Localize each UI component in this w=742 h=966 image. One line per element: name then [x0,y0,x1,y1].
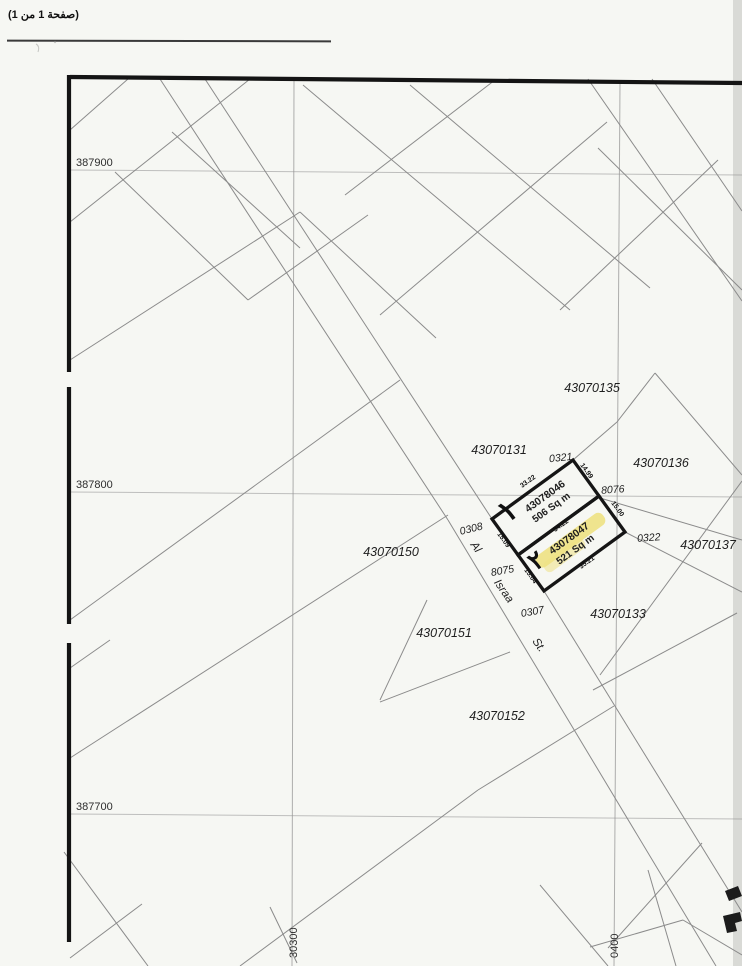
parcel-line [70,380,400,620]
grid-label-387700: 387700 [76,801,113,813]
parcel-line [648,870,676,966]
parcel-line [540,885,608,966]
pencil-mark [54,41,56,43]
grid-label-387900: 387900 [76,157,113,169]
parcel-line [598,148,742,290]
parcel-line [172,132,300,248]
parcel-line [70,904,142,958]
street-number-0307: 0307 [520,604,546,620]
parcel-line [205,79,492,519]
parcel-label-43070136: 43070136 [633,456,689,470]
parcel-line [617,373,655,422]
street-number-0322: 0322 [637,531,661,545]
parcel-label-43070133: 43070133 [590,607,646,621]
parcel-label-43070137: 43070137 [680,538,737,552]
parcel-label-43070131: 43070131 [471,443,527,457]
cadastral-map: 387900 387800 387700 30300 0400 43070135… [0,0,742,966]
parcel-line [70,79,128,130]
parcel-line [560,160,718,310]
parcel-line [380,122,607,315]
parcel-boundaries [64,79,742,966]
dimension-35-21: 35.21 [578,555,596,571]
grid-line-387900 [70,170,742,175]
street-number-0321: 0321 [548,451,572,465]
parcel-line [70,212,300,360]
parcel-line [448,520,716,966]
street-number-8076: 8076 [601,483,625,497]
street-number-8075: 8075 [490,563,515,579]
parcel-line [115,172,248,300]
street-name-israa: Israa [491,577,516,605]
pencil-mark [36,44,39,52]
grid-line-387700 [70,814,742,819]
map-top-border [70,77,742,83]
parcel-label-43070152: 43070152 [469,709,525,723]
parcel-label-43070135: 43070135 [564,381,620,395]
parcel-line [160,79,448,520]
grid-label-230300: 30300 [288,927,300,958]
grid-label-230400: 0400 [609,934,621,958]
street-name-al: Al [467,539,484,555]
parcel-label-43070151: 43070151 [416,626,472,640]
parcel-line [573,422,617,460]
parcel-line [593,613,737,690]
parcel-line [544,591,742,912]
parcel-line [70,640,110,668]
dimension-15-09: 15.09 [495,531,511,549]
grid-label-387800: 387800 [76,479,113,491]
parcel-line [300,212,436,338]
parcel-line [303,85,570,310]
grid-line-387800 [70,492,742,497]
street-name-st: St. [530,636,548,654]
scanned-survey-page: (صفحة 1 من 1) [0,0,742,966]
street-number-0308: 0308 [458,520,484,537]
parcel-line [380,600,427,700]
parcel-line [248,215,368,300]
parcel-line [410,85,650,288]
parcel-line [70,79,250,222]
parcel-label-43070150: 43070150 [363,545,419,559]
